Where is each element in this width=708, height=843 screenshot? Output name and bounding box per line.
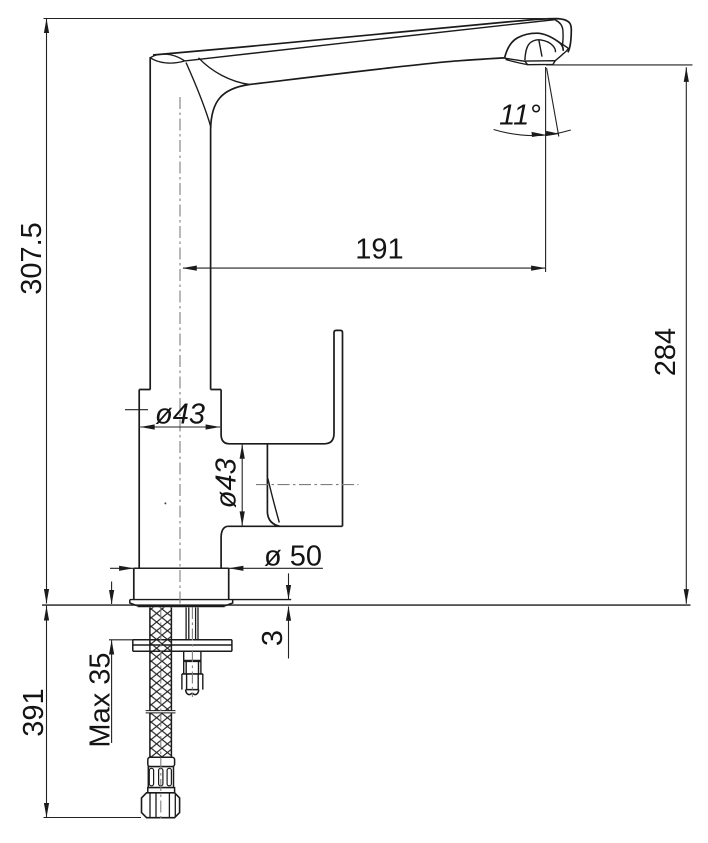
svg-text:ø43: ø43 <box>155 399 205 431</box>
svg-text:11°: 11° <box>499 100 541 132</box>
svg-text:Max 35: Max 35 <box>85 652 117 747</box>
svg-text:284: 284 <box>650 328 682 376</box>
svg-text:ø43: ø43 <box>211 458 243 508</box>
svg-text:307.5: 307.5 <box>16 222 48 295</box>
svg-text:391: 391 <box>18 688 50 736</box>
svg-text:ø 50: ø 50 <box>264 541 322 573</box>
svg-text:191: 191 <box>355 234 403 266</box>
svg-text:3: 3 <box>257 630 289 646</box>
